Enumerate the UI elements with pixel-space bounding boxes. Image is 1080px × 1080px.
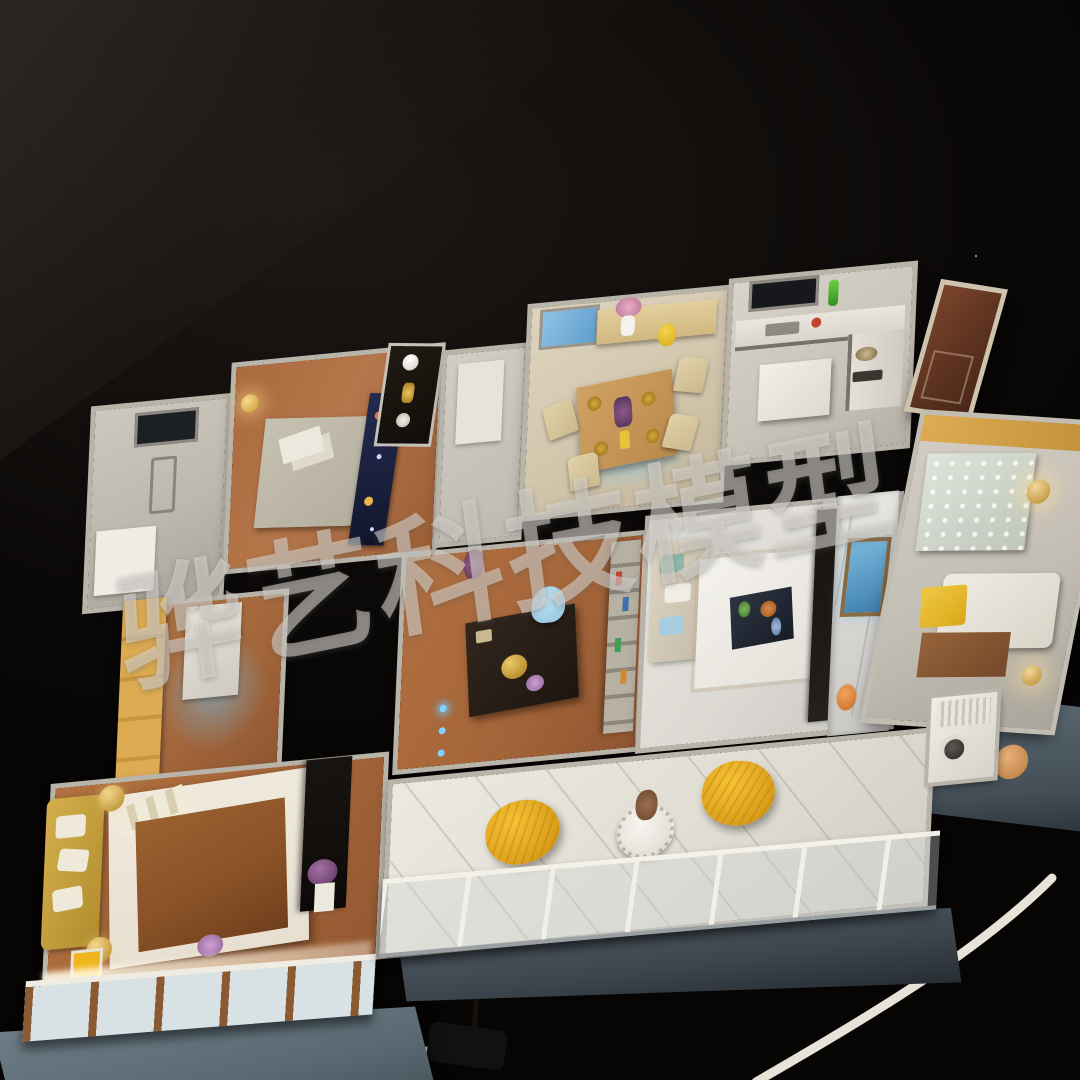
white-cushion: [57, 848, 90, 872]
gold-bowl: [501, 652, 528, 681]
gold-table-lamp: [1020, 665, 1044, 686]
white-cushion: [52, 885, 83, 913]
washer-ribbed-top: [936, 696, 991, 727]
condiment-jar: [811, 317, 821, 328]
rabbit-figurine: [401, 354, 419, 370]
kitchen-window: [748, 275, 819, 312]
yellow-sculpted-chair: [697, 760, 779, 826]
gold-place-setting: [641, 390, 656, 407]
right-wing-bedroom: [865, 415, 1080, 730]
green-bottle-decor: [738, 600, 751, 618]
frying-pan: [855, 346, 878, 362]
door-panel-inset: [920, 350, 974, 404]
yellow-deer-figurine: [658, 323, 677, 347]
book: [615, 638, 622, 653]
washing-machine: [928, 692, 997, 783]
gold-trophy-decor: [401, 383, 416, 403]
led-dot-strip: [439, 705, 446, 713]
yellow-wall-band: [920, 415, 1080, 453]
dark-display-cabinet: [377, 346, 442, 444]
gold-place-setting: [587, 395, 602, 412]
green-soda-bottle: [828, 279, 839, 306]
dining-chair: [542, 398, 579, 441]
coffee-table: [730, 587, 794, 650]
glass-vase: [771, 617, 782, 637]
sideboard: [596, 299, 717, 345]
gold-floor-lamp: [240, 393, 259, 413]
disco-ball-decor: [395, 413, 411, 427]
dining-window-blue: [539, 304, 600, 350]
gold-chaise-sofa: [41, 794, 105, 951]
textured-bed-cover: [915, 453, 1036, 551]
power-adapter: [426, 1021, 509, 1071]
bed-pillows: [278, 426, 324, 465]
dust-speck: [975, 255, 977, 257]
blue-cushion: [659, 616, 684, 636]
bathroom-window: [134, 407, 199, 447]
yellow-pillow: [919, 584, 967, 628]
entry-door-open: [904, 279, 1008, 422]
book: [620, 669, 627, 684]
dining-chair: [673, 356, 710, 393]
photo-of-apartment-scale-model: 骅艺科技模型: [0, 0, 1080, 1080]
fruit-bowl: [760, 599, 777, 618]
star-dot: [376, 454, 382, 459]
brown-throw-blanket: [916, 632, 1011, 677]
white-cushion: [55, 814, 86, 839]
washer-round-door: [939, 733, 970, 766]
white-vase: [620, 315, 635, 337]
kitchen-sink: [765, 321, 799, 336]
towel-ladder-rack: [149, 455, 177, 514]
flower-centerpiece: [613, 395, 633, 428]
brown-duvet: [135, 797, 288, 952]
wardrobe-door: [455, 360, 504, 445]
white-planter: [314, 882, 335, 912]
yellow-sculpted-chair: [483, 792, 562, 872]
small-flowers: [526, 673, 545, 692]
